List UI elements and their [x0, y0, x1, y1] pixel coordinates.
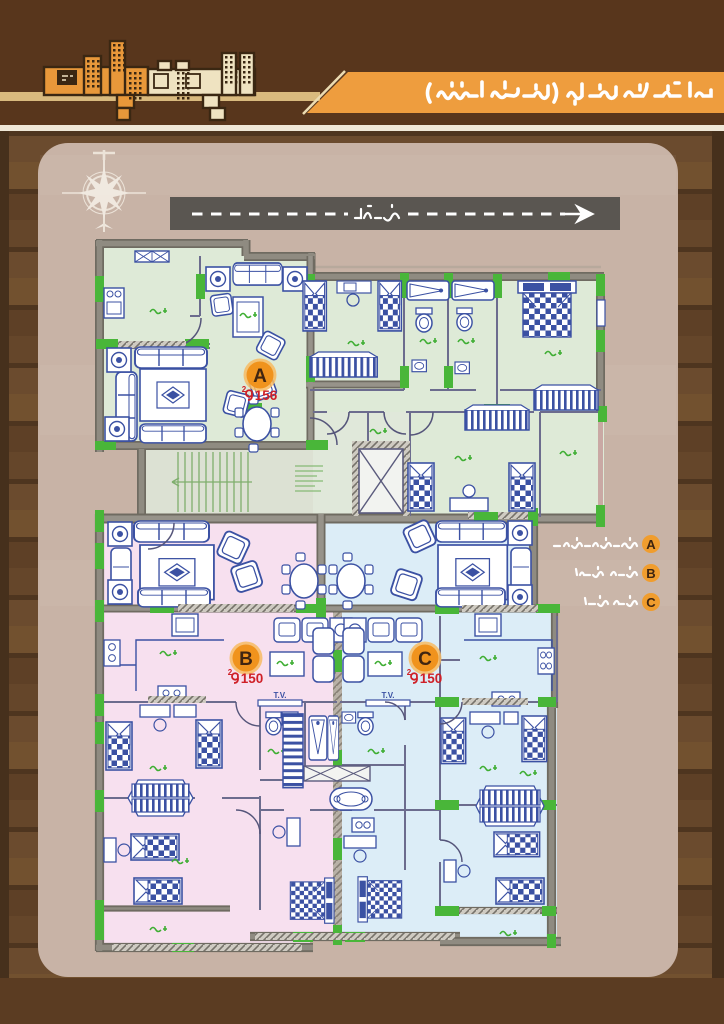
svg-text:B: B	[646, 566, 655, 581]
svg-text:A: A	[646, 537, 656, 552]
svg-text:2: 2	[228, 668, 233, 677]
svg-text:150: 150	[241, 671, 264, 686]
svg-text:C: C	[418, 649, 432, 670]
svg-text:T.V.: T.V.	[381, 691, 394, 700]
svg-text:2: 2	[407, 668, 412, 677]
svg-text:2: 2	[242, 385, 247, 394]
svg-text:C: C	[646, 595, 656, 610]
svg-text:B: B	[239, 649, 253, 670]
svg-text:156: 156	[255, 388, 278, 403]
svg-text:T.V.: T.V.	[273, 691, 286, 700]
svg-text:A: A	[253, 366, 267, 387]
svg-text:150: 150	[420, 671, 443, 686]
